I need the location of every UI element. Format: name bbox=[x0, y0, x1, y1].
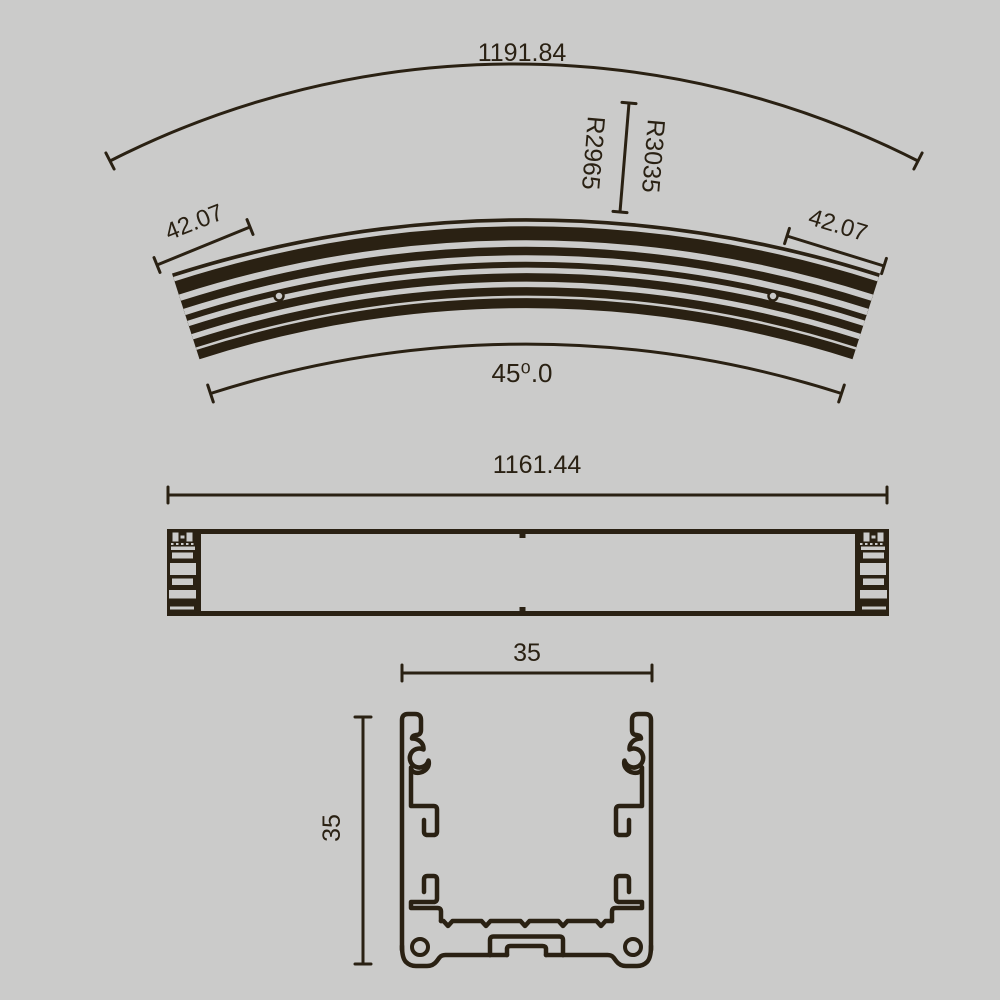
section-center-slot bbox=[490, 937, 563, 956]
foot-hole-right bbox=[625, 939, 641, 955]
dim-radius: R2965 R3035 bbox=[576, 102, 670, 212]
foot-hole-left bbox=[412, 939, 428, 955]
dim-length-label: 1161.44 bbox=[493, 451, 582, 479]
mounting-hole-right bbox=[769, 292, 778, 301]
side-view-profile: 1161.44 bbox=[167, 451, 889, 616]
dim-radius-inner-label: R2965 bbox=[576, 115, 610, 191]
end-cap-left bbox=[167, 529, 201, 616]
dim-arc-length-label: 1191.84 bbox=[478, 39, 567, 67]
dim-width-label: 35 bbox=[513, 639, 541, 667]
end-cap-right bbox=[855, 529, 889, 616]
mounting-hole-left bbox=[275, 292, 284, 301]
dim-angle: 45⁰.0 bbox=[208, 344, 845, 402]
dim-length: 1161.44 bbox=[168, 451, 887, 503]
dim-width: 35 bbox=[402, 639, 652, 681]
section-view-profile: 35 35 bbox=[318, 639, 652, 966]
dim-radius-outer-label: R3035 bbox=[636, 118, 670, 194]
section-floor-serrated bbox=[441, 921, 612, 926]
top-view-curved-profile: 1191.84 R2965 R3035 42.07 42.07 bbox=[106, 39, 922, 402]
dim-height-label: 35 bbox=[318, 814, 346, 842]
dim-height: 35 bbox=[318, 717, 371, 964]
seam-mark-bottom bbox=[520, 607, 526, 616]
technical-drawing-canvas: 1191.84 R2965 R3035 42.07 42.07 bbox=[0, 0, 1000, 1000]
section-right-wall bbox=[563, 714, 651, 966]
profile-body-outline bbox=[170, 532, 887, 614]
seam-mark-top bbox=[520, 529, 526, 538]
dim-arc-length: 1191.84 bbox=[106, 39, 922, 169]
dim-end-width-right-label: 42.07 bbox=[805, 204, 870, 247]
dim-angle-label: 45⁰.0 bbox=[491, 358, 552, 388]
section-left-wall bbox=[402, 714, 490, 966]
